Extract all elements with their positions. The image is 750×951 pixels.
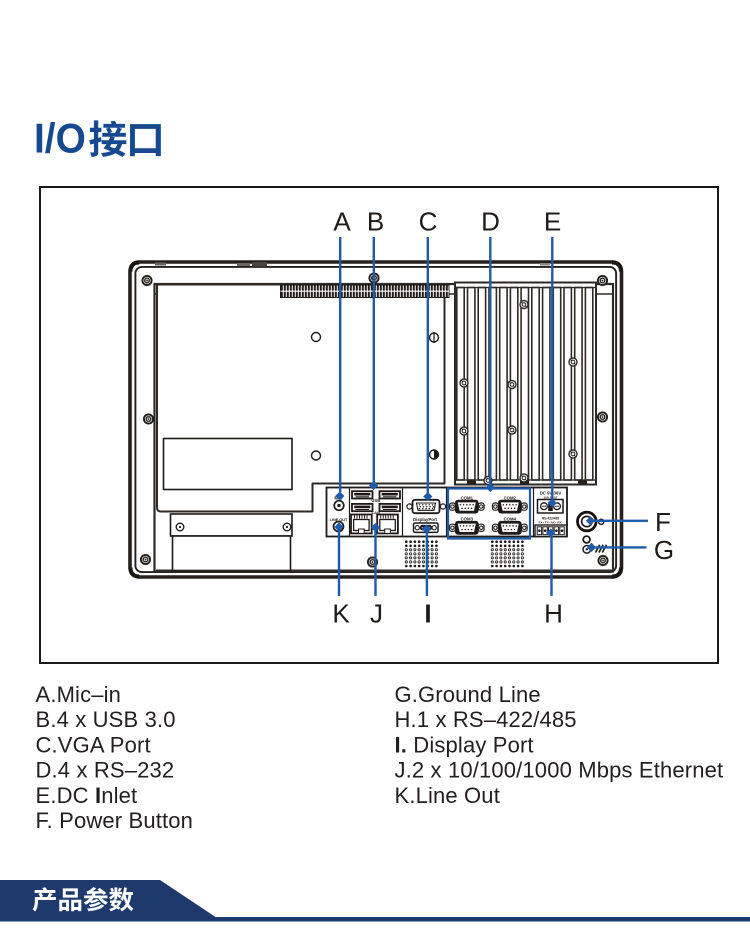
svg-text:E: E — [544, 207, 561, 237]
svg-text:F. Power Button: F. Power Button — [36, 808, 194, 833]
svg-text:B: B — [367, 207, 384, 237]
svg-text:J: J — [370, 599, 383, 629]
svg-text:A: A — [333, 207, 351, 237]
svg-text:K.Line Out: K.Line Out — [395, 783, 500, 808]
svg-text:DisplayPort: DisplayPort — [413, 517, 437, 522]
svg-text:H: H — [544, 599, 563, 629]
svg-text:A.Mic–in: A.Mic–in — [36, 682, 122, 707]
svg-text:G.Ground Line: G.Ground Line — [395, 682, 541, 707]
svg-text:TX+ TX- RX+ RX-: TX+ TX- RX+ RX- — [538, 521, 562, 525]
svg-text:USB: USB — [371, 498, 380, 503]
svg-text:COM2: COM2 — [504, 495, 517, 500]
svg-text:C.VGA Port: C.VGA Port — [36, 732, 151, 757]
svg-text:I: I — [424, 599, 431, 629]
svg-text:D: D — [481, 207, 500, 237]
svg-text:D.4 x RS–232: D.4 x RS–232 — [36, 758, 175, 783]
svg-text:E.DC Inlet: E.DC Inlet — [36, 783, 138, 808]
svg-text:H.1 x RS–422/485: H.1 x RS–422/485 — [395, 707, 577, 732]
svg-text:COM3: COM3 — [461, 517, 474, 522]
svg-text:K: K — [332, 599, 350, 629]
svg-text:J.2 x 10/100/1000 Mbps Etherne: J.2 x 10/100/1000 Mbps Ethernet — [395, 758, 724, 783]
svg-text:COM1: COM1 — [461, 495, 474, 500]
svg-text:10A 2.5AT: 10A 2.5AT — [543, 495, 557, 499]
svg-text:I/O: I/O — [34, 114, 86, 162]
svg-text:I. Display Port: I. Display Port — [395, 732, 534, 757]
svg-text:C: C — [419, 207, 438, 237]
svg-text:COM4: COM4 — [504, 517, 517, 522]
svg-text:G: G — [654, 535, 674, 565]
svg-text:B.4 x USB 3.0: B.4 x USB 3.0 — [36, 707, 176, 732]
svg-text:F: F — [655, 507, 671, 537]
